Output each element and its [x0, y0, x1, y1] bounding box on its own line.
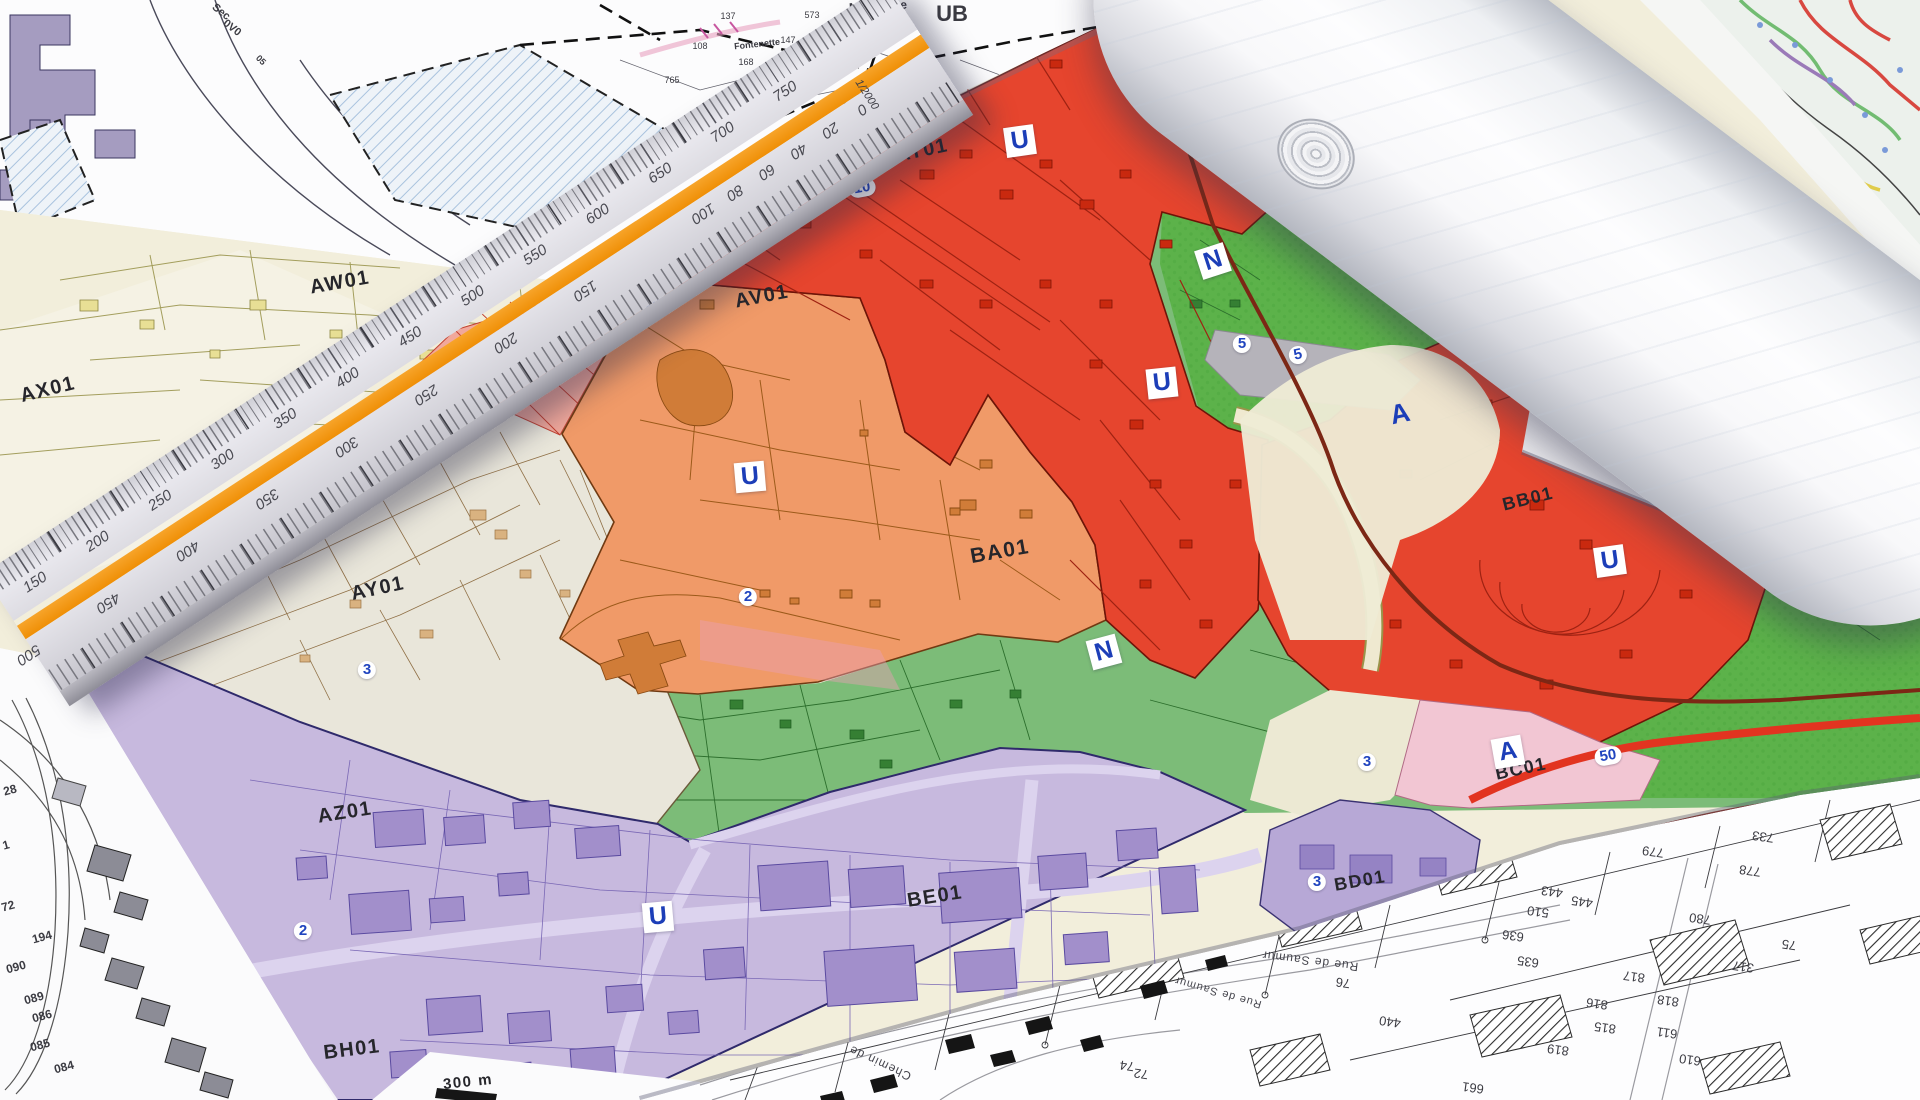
photo-canvas: AW01AX01AY01AV01AT01BA01AZ01BH01BE01BD01… — [0, 0, 1920, 1100]
